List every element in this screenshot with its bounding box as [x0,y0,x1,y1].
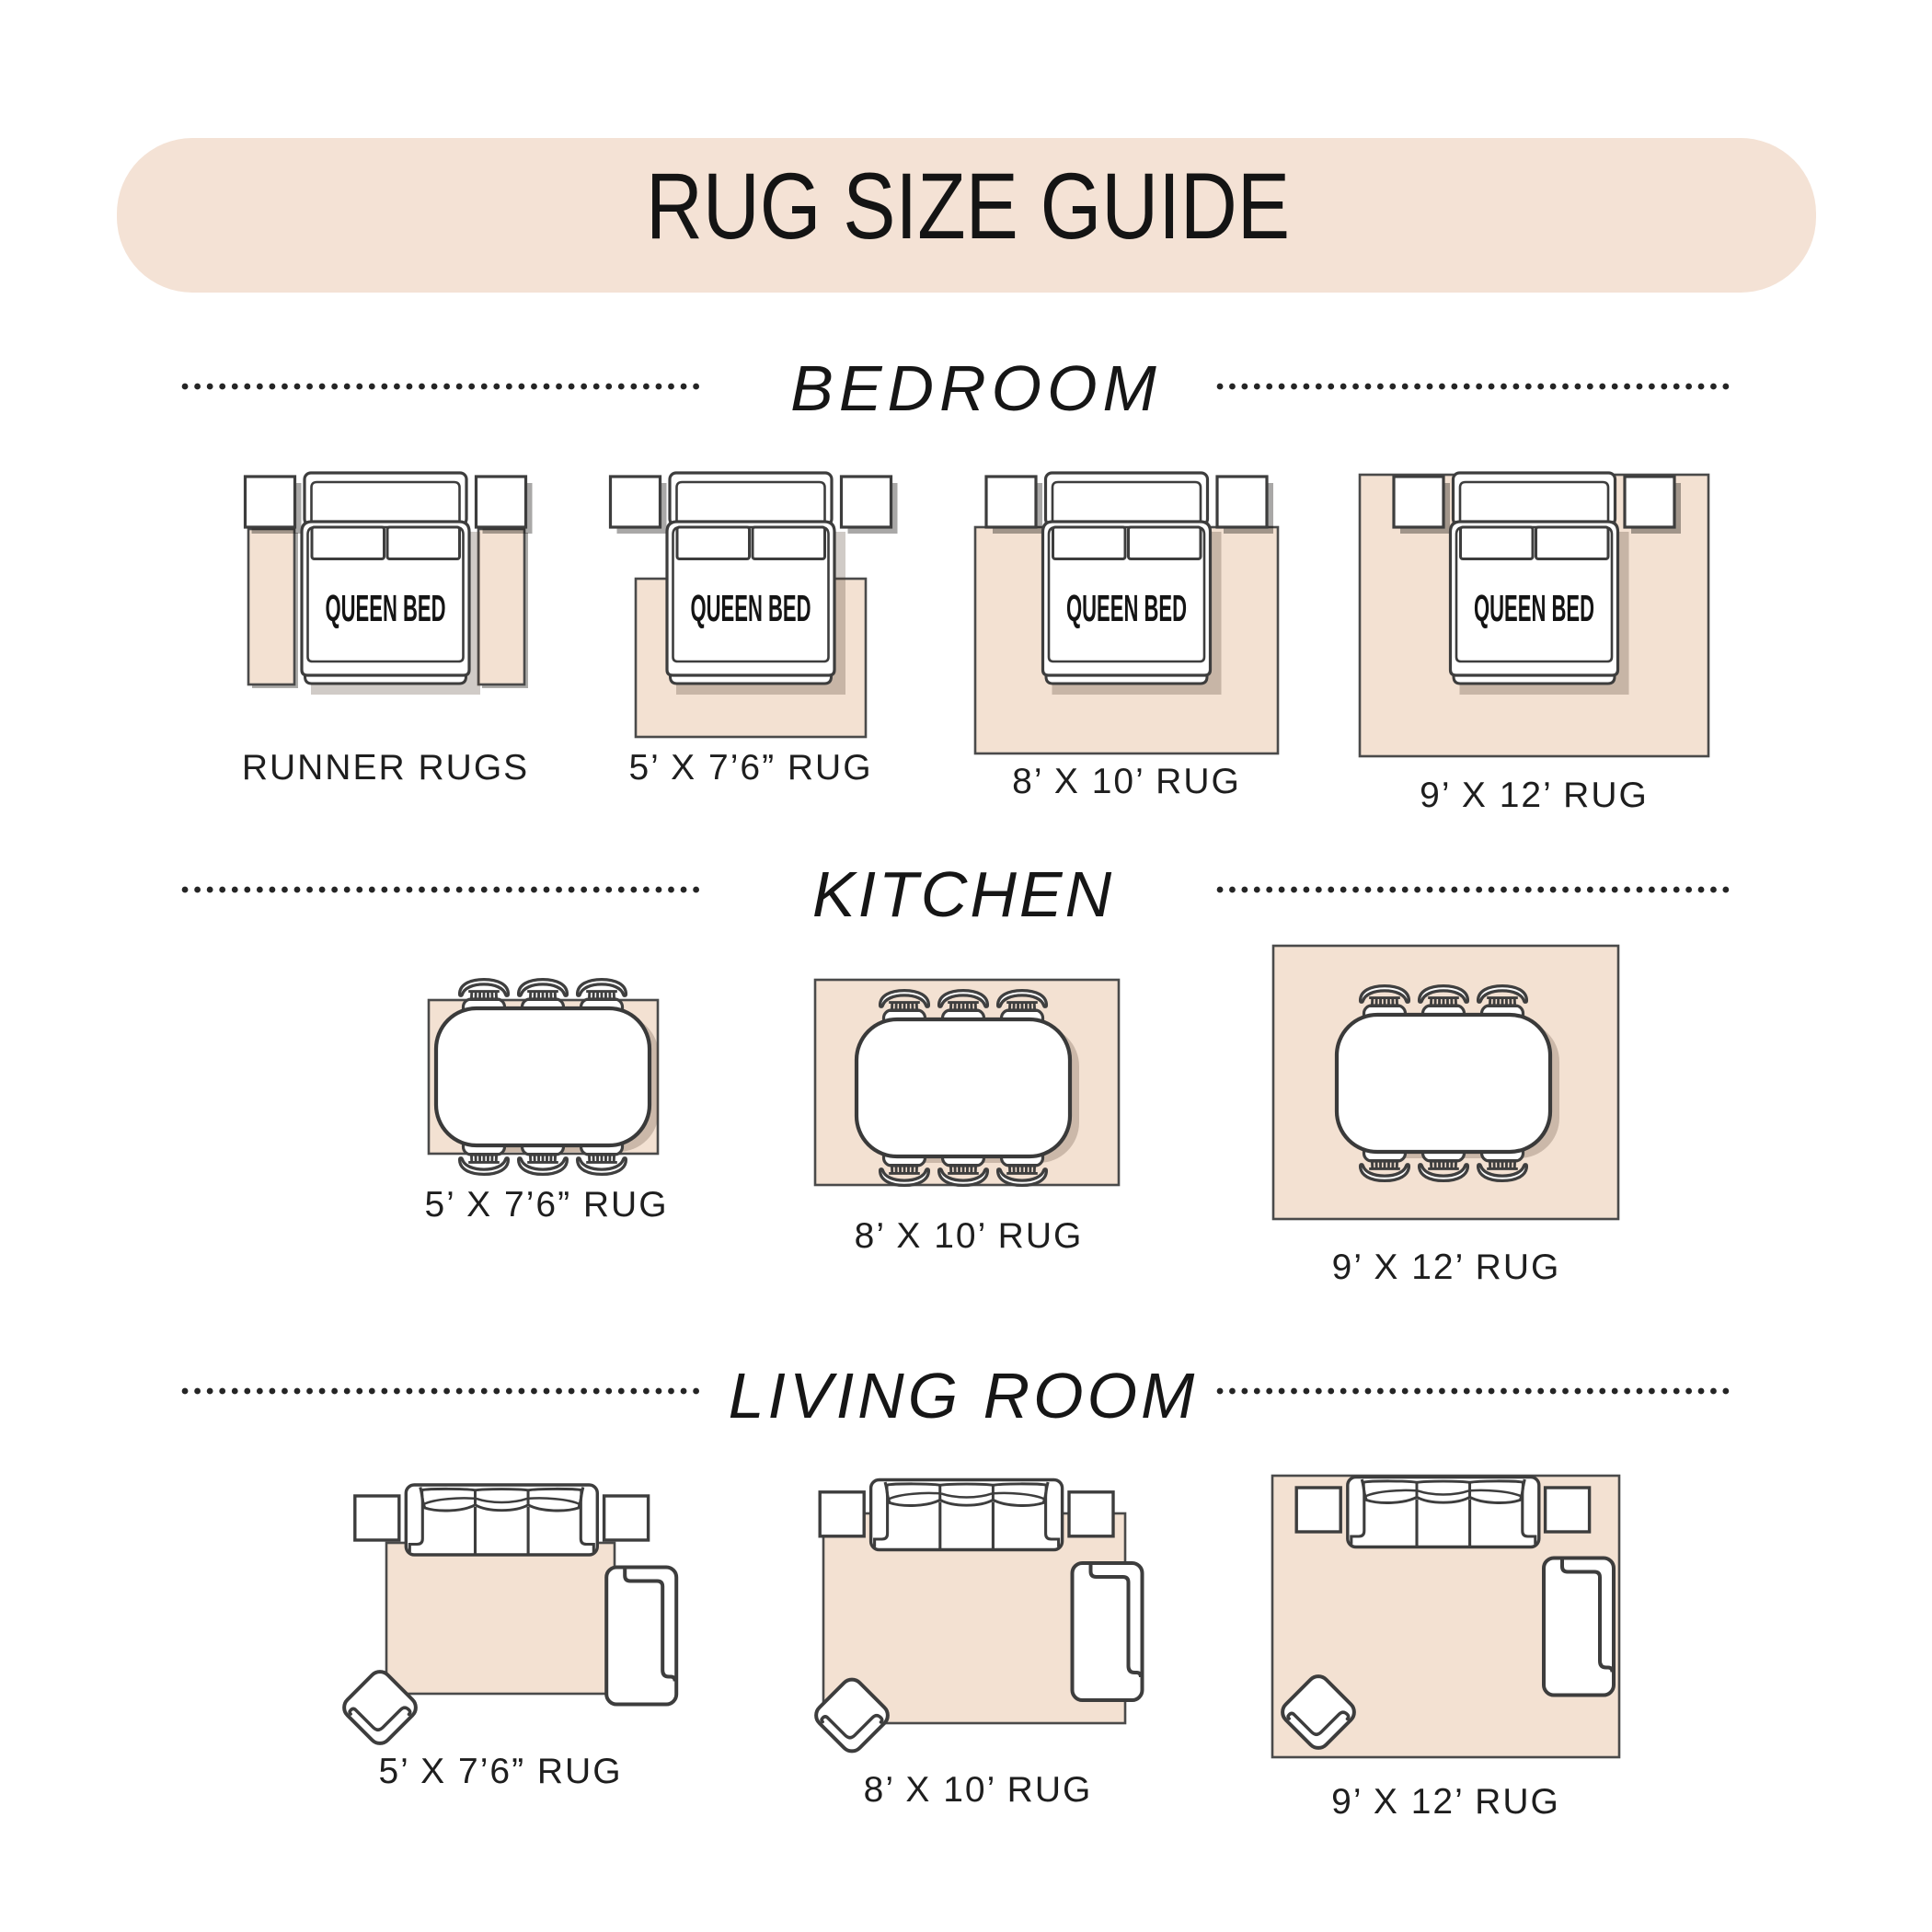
svg-text:8’ X 10’ RUG: 8’ X 10’ RUG [855,1216,1084,1256]
svg-text:5’ X 7’6” RUG: 5’ X 7’6” RUG [424,1185,668,1225]
svg-text:8’ X 10’ RUG: 8’ X 10’ RUG [1012,762,1241,801]
svg-text:LIVING ROOM: LIVING ROOM [729,1360,1199,1432]
svg-text:5’ X 7’6” RUG: 5’ X 7’6” RUG [628,748,872,788]
svg-text:BEDROOM: BEDROOM [790,352,1162,424]
svg-text:5’ X 7’6” RUG: 5’ X 7’6” RUG [378,1752,622,1791]
svg-text:9’ X 12’ RUG: 9’ X 12’ RUG [1420,776,1649,815]
svg-text:KITCHEN: KITCHEN [812,858,1114,930]
svg-text:9’ X 12’ RUG: 9’ X 12’ RUG [1331,1782,1560,1822]
svg-text:9’ X 12’ RUG: 9’ X 12’ RUG [1332,1248,1561,1287]
svg-text:RUNNER RUGS: RUNNER RUGS [242,748,529,788]
svg-text:RUG SIZE GUIDE: RUG SIZE GUIDE [646,154,1290,259]
svg-text:8’ X 10’ RUG: 8’ X 10’ RUG [864,1770,1093,1810]
